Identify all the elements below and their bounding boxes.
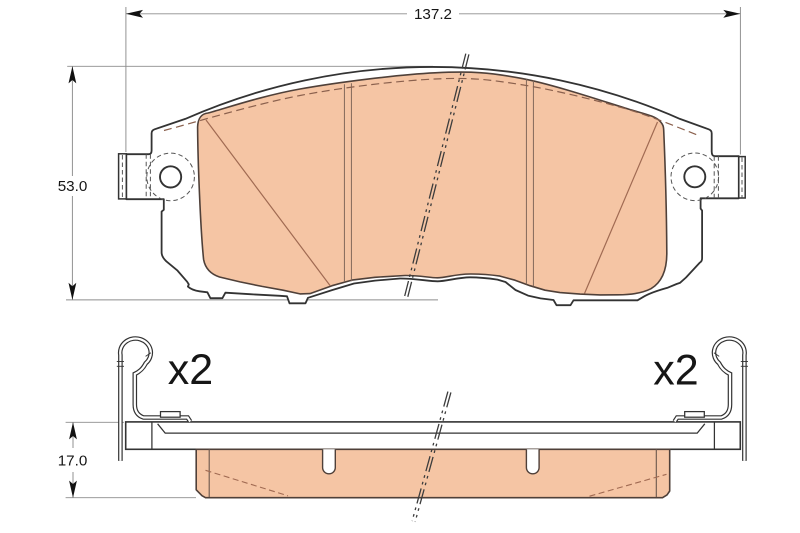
svg-text:137.2: 137.2 [414, 6, 452, 23]
svg-text:53.0: 53.0 [58, 178, 88, 195]
svg-text:x2: x2 [653, 347, 698, 395]
svg-text:17.0: 17.0 [58, 453, 88, 470]
svg-text:x2: x2 [168, 346, 213, 394]
